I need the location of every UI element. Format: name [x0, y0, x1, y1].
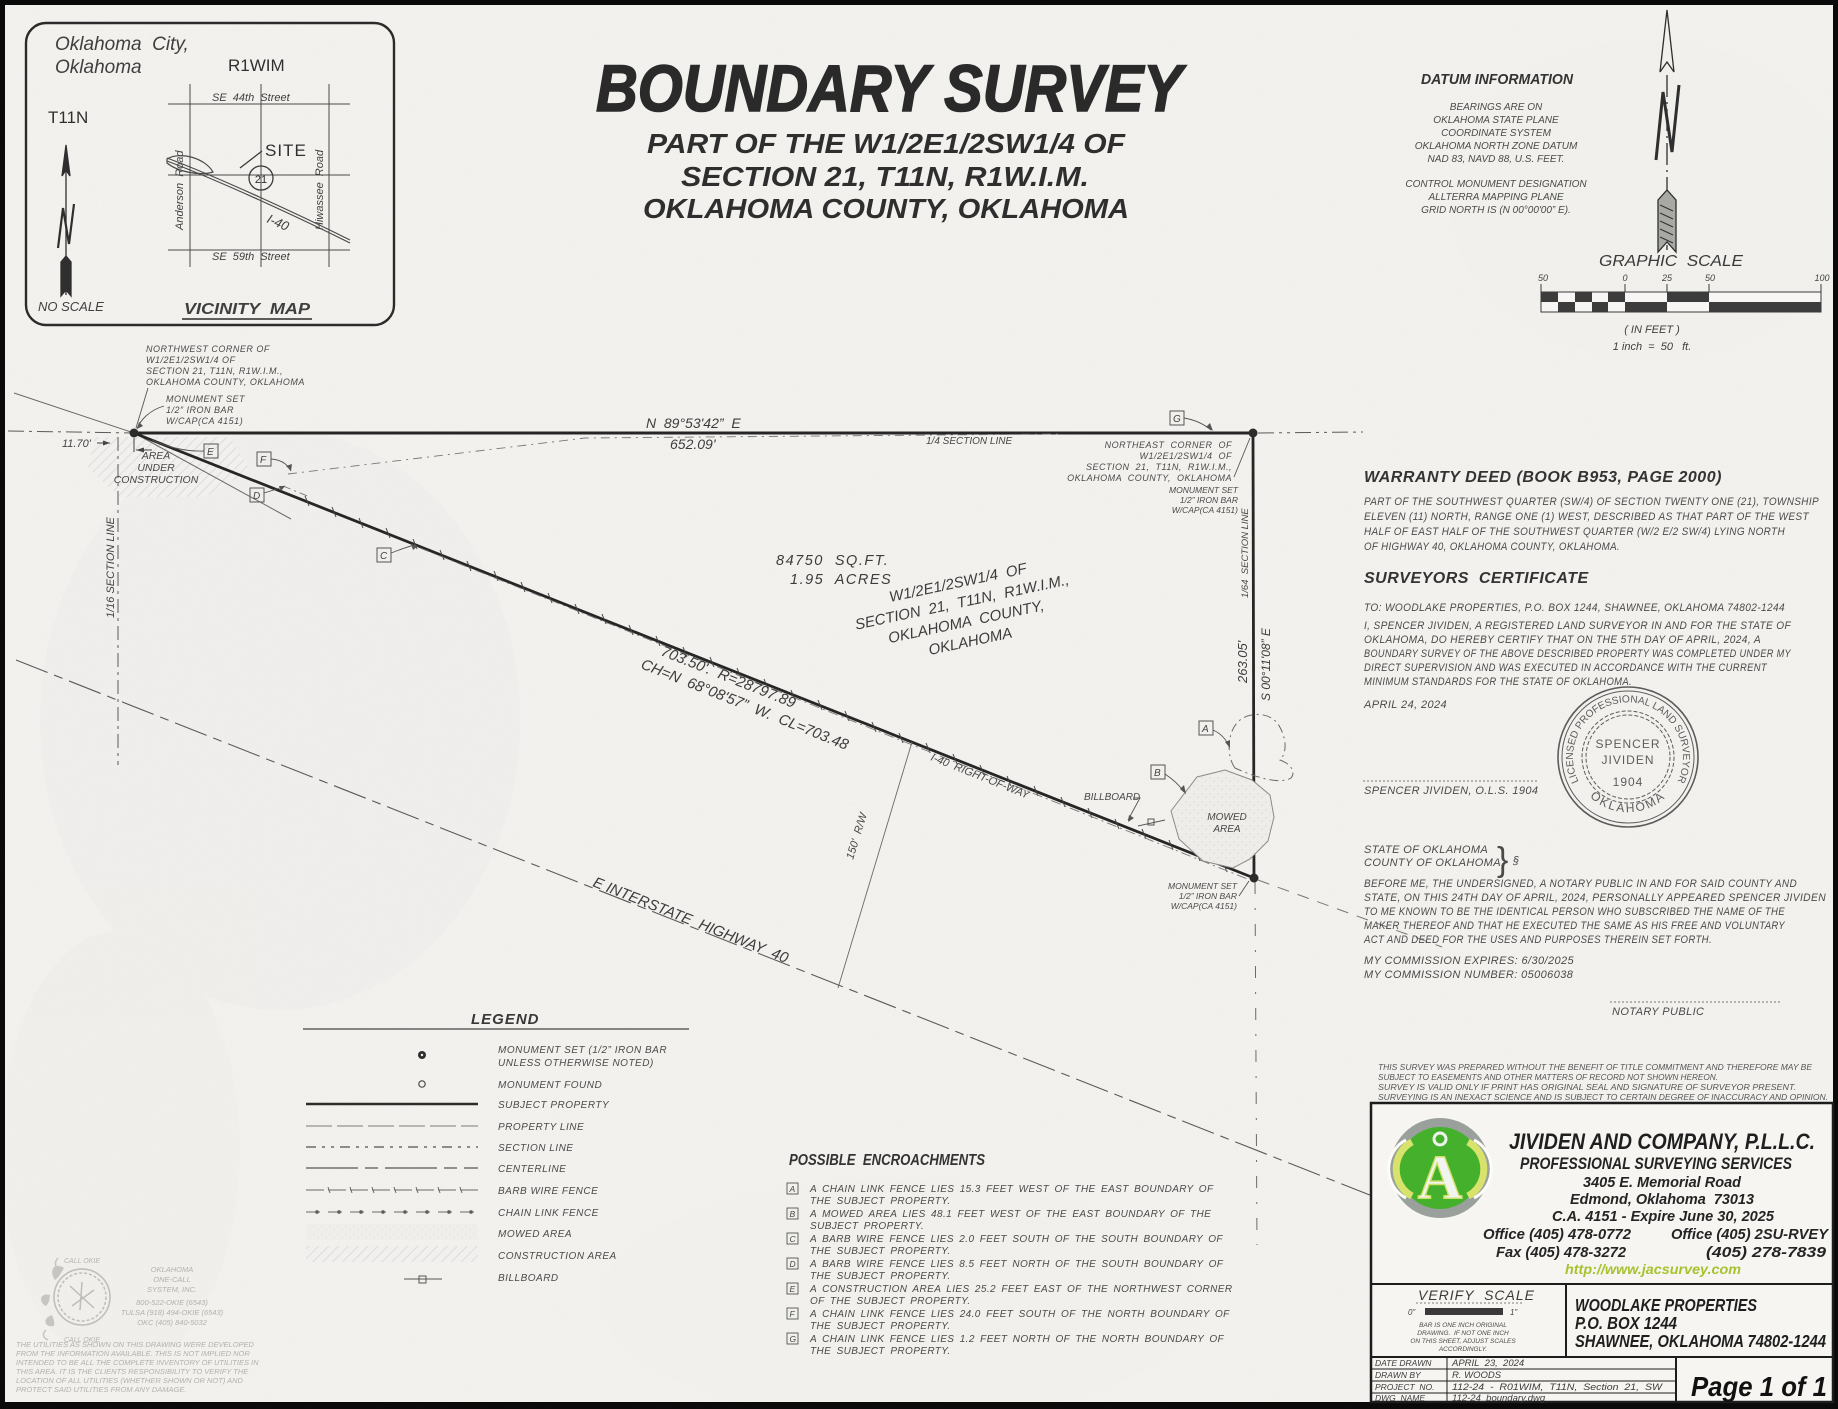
- svg-text:HALF OF EAST HALF OF THE SOUTH: HALF OF EAST HALF OF THE SOUTHWEST QUART…: [1364, 526, 1785, 538]
- svg-text:G: G: [1173, 414, 1181, 425]
- svg-text:A CHAIN LINK FENCE LIES 15.3 F: A CHAIN LINK FENCE LIES 15.3 FEET WEST O…: [809, 1184, 1214, 1195]
- svg-text:Oklahoma City,: Oklahoma City,: [55, 34, 189, 55]
- svg-text:CENTERLINE: CENTERLINE: [498, 1164, 566, 1175]
- svg-text:SPENCER: SPENCER: [1595, 737, 1660, 751]
- svg-text:DRAWN BY: DRAWN BY: [1375, 1370, 1422, 1380]
- svg-text:THIS SURVEY WAS PREPARED WITHO: THIS SURVEY WAS PREPARED WITHOUT THE BEN…: [1378, 1063, 1813, 1072]
- svg-text:VICINITY MAP: VICINITY MAP: [184, 301, 310, 318]
- svg-text:LEGEND: LEGEND: [471, 1011, 540, 1028]
- svg-text:ON THIS SHEET, ADJUST SCALES: ON THIS SHEET, ADJUST SCALES: [1410, 1338, 1516, 1345]
- svg-text:A CONSTRUCTION AREA LIES 25.2: A CONSTRUCTION AREA LIES 25.2 FEET EAST …: [809, 1284, 1232, 1295]
- svg-text:BEFORE ME, THE UNDERSIGNED, A: BEFORE ME, THE UNDERSIGNED, A NOTARY PUB…: [1364, 878, 1797, 890]
- svg-text:A BARB WIRE FENCE LIES 8.5 FEE: A BARB WIRE FENCE LIES 8.5 FEET NORTH OF…: [809, 1259, 1224, 1270]
- svg-text:W1/2E1/2SW1/4 OF: W1/2E1/2SW1/4 OF: [1139, 451, 1232, 461]
- svg-text:F: F: [790, 1309, 796, 1319]
- svg-text:SECTION 21, T11N, R1W.I.M.,: SECTION 21, T11N, R1W.I.M.,: [146, 366, 283, 376]
- svg-text:Office (405) 2SU-RVEY: Office (405) 2SU-RVEY: [1671, 1226, 1830, 1243]
- svg-text:SUBJECT TO EASEMENTS AND OTHER: SUBJECT TO EASEMENTS AND OTHER MATTERS O…: [1378, 1073, 1718, 1082]
- svg-text:NAD 83, NAVD 88, U.S. FEET.: NAD 83, NAVD 88, U.S. FEET.: [1428, 154, 1565, 165]
- svg-text:100: 100: [1814, 273, 1829, 283]
- svg-text:SITE: SITE: [265, 141, 307, 160]
- svg-text:CONSTRUCTION: CONSTRUCTION: [114, 474, 199, 486]
- svg-text:0: 0: [1622, 273, 1627, 283]
- svg-text:1/64 SECTION LINE: 1/64 SECTION LINE: [1240, 508, 1251, 598]
- svg-text:DIRECT SUPERVISION AND WAS EXE: DIRECT SUPERVISION AND WAS EXECUTED IN A…: [1364, 662, 1768, 674]
- svg-text:1.95 ACRES: 1.95 ACRES: [790, 572, 892, 588]
- svg-text:}: }: [1497, 841, 1508, 879]
- svg-text:FROM THE INFORMATION AVAILABLE: FROM THE INFORMATION AVAILABLE. THIS IS …: [16, 1349, 250, 1358]
- svg-text:B: B: [1154, 768, 1161, 779]
- svg-text:C.A. 4151 - Expire June 30, 20: C.A. 4151 - Expire June 30, 2025: [1552, 1208, 1775, 1225]
- svg-text:ACCORDINGLY.: ACCORDINGLY.: [1438, 1346, 1487, 1353]
- svg-text:CALL OKIE: CALL OKIE: [64, 1258, 100, 1265]
- svg-text:SUBJECT PROPERTY.: SUBJECT PROPERTY.: [810, 1221, 924, 1232]
- svg-text:CHAIN LINK FENCE: CHAIN LINK FENCE: [498, 1208, 599, 1219]
- svg-text:OKLAHOMA STATE PLANE: OKLAHOMA STATE PLANE: [1433, 115, 1559, 126]
- svg-text:MY COMMISSION EXPIRES: 6/30/20: MY COMMISSION EXPIRES: 6/30/2025: [1364, 955, 1575, 967]
- svg-text:Oklahoma: Oklahoma: [55, 57, 142, 78]
- svg-text:PROTECT SAID UTILITIES FROM AN: PROTECT SAID UTILITIES FROM ANY DAMAGE.: [16, 1385, 186, 1394]
- svg-text:MAKER THEREOF AND THAT HE EXEC: MAKER THEREOF AND THAT HE EXECUTED THE S…: [1364, 920, 1785, 932]
- svg-text:OKLAHOMA COUNTY, OKLAHOMA: OKLAHOMA COUNTY, OKLAHOMA: [643, 193, 1129, 224]
- svg-text:(405) 278-7839: (405) 278-7839: [1706, 1244, 1827, 1261]
- svg-text:LOCATION OF ALL UTILITIES (WHE: LOCATION OF ALL UTILITIES (WHETHER SHOWN…: [16, 1376, 244, 1385]
- svg-text:STATE, ON THIS 24TH DAY OF APR: STATE, ON THIS 24TH DAY OF APRIL, 2024, …: [1364, 892, 1826, 904]
- svg-text:SPENCER JIVIDEN, O.L.S. 1904: SPENCER JIVIDEN, O.L.S. 1904: [1364, 785, 1538, 797]
- svg-text:COORDINATE SYSTEM: COORDINATE SYSTEM: [1441, 128, 1551, 139]
- svg-text:MONUMENT SET (1/2” IRON BAR: MONUMENT SET (1/2” IRON BAR: [498, 1045, 667, 1056]
- svg-text:SECTION LINE: SECTION LINE: [498, 1143, 573, 1154]
- svg-text:THE SUBJECT PROPERTY.: THE SUBJECT PROPERTY.: [810, 1321, 951, 1332]
- svg-text:652.09': 652.09': [670, 436, 717, 452]
- svg-text:COUNTY OF OKLAHOMA: COUNTY OF OKLAHOMA: [1364, 857, 1501, 869]
- svg-text:E: E: [207, 447, 214, 458]
- svg-text:SURVEY IS VALID ONLY IF PRINT: SURVEY IS VALID ONLY IF PRINT HAS ORIGIN…: [1378, 1083, 1796, 1092]
- svg-text:C: C: [380, 551, 388, 562]
- svg-text:R. WOODS: R. WOODS: [1452, 1370, 1502, 1381]
- svg-text:D: D: [790, 1259, 796, 1269]
- svg-text:STATE OF OKLAHOMA: STATE OF OKLAHOMA: [1364, 844, 1488, 856]
- svg-text:OKLAHOMA: OKLAHOMA: [151, 1265, 194, 1274]
- svg-text:1 inch = 50 ft.: 1 inch = 50 ft.: [1613, 341, 1692, 353]
- svg-text:1/2” IRON BAR: 1/2” IRON BAR: [166, 405, 234, 415]
- svg-text:BILLBOARD: BILLBOARD: [1084, 792, 1140, 803]
- svg-text:Fax (405) 478-3272: Fax (405) 478-3272: [1496, 1244, 1627, 1261]
- svg-text:SECTION 21, T11N, R1W.I.M.: SECTION 21, T11N, R1W.I.M.: [681, 161, 1089, 192]
- svg-text:P.O. BOX 1244: P.O. BOX 1244: [1575, 1313, 1677, 1333]
- svg-text:( IN FEET ): ( IN FEET ): [1624, 324, 1680, 336]
- svg-text:GRAPHIC SCALE: GRAPHIC SCALE: [1599, 253, 1743, 270]
- svg-text:DRAWING. IF NOT ONE INCH: DRAWING. IF NOT ONE INCH: [1417, 1330, 1509, 1337]
- svg-text:PROFESSIONAL SURVEYING SERVICE: PROFESSIONAL SURVEYING SERVICES: [1520, 1154, 1793, 1173]
- svg-text:THE SUBJECT PROPERTY.: THE SUBJECT PROPERTY.: [810, 1196, 951, 1207]
- svg-text:112-24_boundary.dwg: 112-24_boundary.dwg: [1452, 1393, 1546, 1404]
- svg-text:C: C: [790, 1234, 797, 1244]
- svg-text:N 89°53'42” E: N 89°53'42” E: [646, 415, 741, 431]
- svg-text:1/16 SECTION LINE: 1/16 SECTION LINE: [105, 516, 117, 618]
- svg-text:50: 50: [1538, 273, 1548, 283]
- svg-text:S 00°11'08” E: S 00°11'08” E: [1259, 627, 1273, 701]
- svg-text:T11N: T11N: [48, 108, 88, 127]
- svg-text:1/2” IRON BAR: 1/2” IRON BAR: [1180, 495, 1238, 505]
- svg-text:AREA: AREA: [1212, 824, 1241, 835]
- svg-text:DATE DRAWN: DATE DRAWN: [1375, 1358, 1432, 1368]
- svg-text:MONUMENT SET: MONUMENT SET: [1168, 881, 1238, 891]
- svg-text:50: 50: [1705, 273, 1715, 283]
- svg-text:ACT AND DEED FOR THE USES AND: ACT AND DEED FOR THE USES AND PURPOSES T…: [1363, 934, 1712, 946]
- svg-text:84750 SQ.FT.: 84750 SQ.FT.: [776, 553, 889, 569]
- svg-text:263.05': 263.05': [1235, 640, 1250, 684]
- svg-text:A MOWED AREA LIES 48.1 FEET WE: A MOWED AREA LIES 48.1 FEET WEST OF THE …: [809, 1209, 1211, 1220]
- svg-text:BARB WIRE FENCE: BARB WIRE FENCE: [498, 1186, 598, 1197]
- svg-text:BAR IS ONE INCH ORIGINAL: BAR IS ONE INCH ORIGINAL: [1419, 1322, 1507, 1329]
- svg-text:W1/2E1/2SW1/4 OF: W1/2E1/2SW1/4 OF: [146, 355, 236, 365]
- svg-text:R1WIM: R1WIM: [228, 56, 285, 75]
- svg-text:11.70': 11.70': [62, 438, 92, 450]
- svg-text:THIS AREA. IT IS THE CLIENTS R: THIS AREA. IT IS THE CLIENTS RESPONSIBIL…: [16, 1367, 249, 1376]
- svg-text:1/4 SECTION LINE: 1/4 SECTION LINE: [926, 436, 1012, 447]
- svg-text:TO ME KNOWN TO BE THE IDENTICA: TO ME KNOWN TO BE THE IDENTICAL PERSON W…: [1364, 906, 1785, 918]
- svg-text:W/CAP(CA 4151): W/CAP(CA 4151): [1172, 505, 1238, 515]
- svg-text:PART OF THE W1/2E1/2SW1/4 OF: PART OF THE W1/2E1/2SW1/4 OF: [647, 128, 1126, 159]
- svg-text:http://www.jacsurvey.com: http://www.jacsurvey.com: [1565, 1261, 1741, 1277]
- svg-text:E: E: [790, 1284, 796, 1294]
- svg-text:MOWED: MOWED: [1207, 812, 1246, 823]
- svg-text:PROPERTY LINE: PROPERTY LINE: [498, 1122, 584, 1133]
- svg-text:SURVEYING IS AN INEXACT SCIENC: SURVEYING IS AN INEXACT SCIENCE AND IS S…: [1378, 1093, 1828, 1102]
- svg-text:APRIL 24, 2024: APRIL 24, 2024: [1363, 699, 1447, 711]
- svg-text:A CHAIN LINK FENCE LIES 1.2 FE: A CHAIN LINK FENCE LIES 1.2 FEET NORTH O…: [809, 1334, 1225, 1345]
- svg-text:THE SUBJECT PROPERTY.: THE SUBJECT PROPERTY.: [810, 1271, 951, 1282]
- svg-text:25: 25: [1661, 273, 1673, 283]
- svg-text:1904: 1904: [1613, 775, 1644, 789]
- svg-text:OKLAHOMA NORTH ZONE DATUM: OKLAHOMA NORTH ZONE DATUM: [1415, 141, 1578, 152]
- svg-text:MOWED AREA: MOWED AREA: [498, 1229, 572, 1240]
- svg-text:GRID NORTH IS (N 00°00'00” E).: GRID NORTH IS (N 00°00'00” E).: [1421, 205, 1571, 216]
- svg-text:BOUNDARY SURVEY: BOUNDARY SURVEY: [596, 51, 1186, 125]
- svg-text:UNDER: UNDER: [137, 462, 175, 474]
- svg-text:NOTARY PUBLIC: NOTARY PUBLIC: [1612, 1006, 1704, 1018]
- svg-text:BOUNDARY SURVEY OF THE ABOVE D: BOUNDARY SURVEY OF THE ABOVE DESCRIBED P…: [1364, 648, 1791, 660]
- svg-text:A: A: [1201, 724, 1209, 735]
- svg-text:AREA: AREA: [141, 450, 171, 462]
- svg-text:OF THE SUBJECT PROPERTY.: OF THE SUBJECT PROPERTY.: [810, 1296, 971, 1307]
- svg-text:DATUM INFORMATION: DATUM INFORMATION: [1421, 72, 1574, 88]
- svg-text:G: G: [790, 1334, 797, 1344]
- svg-text:OF HIGHWAY 40, OKLAHOMA COUNTY: OF HIGHWAY 40, OKLAHOMA COUNTY, OKLAHOMA…: [1364, 541, 1620, 553]
- svg-text:ELEVEN (11) NORTH, RANGE ONE (: ELEVEN (11) NORTH, RANGE ONE (1) WEST, D…: [1364, 511, 1810, 523]
- svg-text:NO SCALE: NO SCALE: [38, 299, 104, 314]
- svg-text:SE 44th Street: SE 44th Street: [212, 92, 291, 104]
- svg-text:APRIL 23, 2024: APRIL 23, 2024: [1451, 1358, 1524, 1369]
- svg-text:JIVIDEN: JIVIDEN: [1601, 753, 1654, 767]
- svg-text:3405 E. Memorial Road: 3405 E. Memorial Road: [1583, 1174, 1742, 1191]
- svg-text:OKLAHOMA COUNTY, OKLAHOMA: OKLAHOMA COUNTY, OKLAHOMA: [146, 377, 305, 387]
- svg-text:1/2” IRON BAR: 1/2” IRON BAR: [1179, 891, 1237, 901]
- svg-text:SECTION 21, T11N, R1W.I.M.,: SECTION 21, T11N, R1W.I.M.,: [1086, 462, 1232, 472]
- svg-text:OKC (405) 840-5032: OKC (405) 840-5032: [137, 1318, 207, 1327]
- svg-text:OKLAHOMA, DO HEREBY CERTIFY TH: OKLAHOMA, DO HEREBY CERTIFY THAT ON THE …: [1364, 634, 1761, 646]
- svg-text:SURVEYORS CERTIFICATE: SURVEYORS CERTIFICATE: [1364, 570, 1589, 587]
- svg-text:WARRANTY DEED (BOOK B953, PAGE: WARRANTY DEED (BOOK B953, PAGE 2000): [1364, 469, 1722, 486]
- svg-text:ONE-CALL: ONE-CALL: [153, 1275, 191, 1284]
- svg-text:PROJECT NO.: PROJECT NO.: [1375, 1382, 1435, 1392]
- svg-text:MONUMENT SET: MONUMENT SET: [1169, 485, 1239, 495]
- svg-text:W/CAP(CA 4151): W/CAP(CA 4151): [166, 416, 243, 426]
- svg-text:SUBJECT PROPERTY: SUBJECT PROPERTY: [498, 1100, 610, 1111]
- svg-text:I, SPENCER JIVIDEN, A REGISTER: I, SPENCER JIVIDEN, A REGISTERED LAND SU…: [1364, 620, 1792, 632]
- svg-text:CONTROL MONUMENT DESIGNATION: CONTROL MONUMENT DESIGNATION: [1405, 179, 1587, 190]
- svg-text:A: A: [789, 1184, 796, 1194]
- svg-text:SE 59th Street: SE 59th Street: [212, 251, 291, 263]
- svg-text:POSSIBLE ENCROACHMENTS: POSSIBLE ENCROACHMENTS: [789, 1152, 985, 1169]
- svg-text:D: D: [253, 491, 260, 502]
- svg-text:A: A: [1418, 1144, 1463, 1212]
- svg-text:§: §: [1512, 855, 1519, 867]
- svg-text:INTENDED TO BE ALL THE COMPLET: INTENDED TO BE ALL THE COMPLETE INVENTOR…: [16, 1358, 259, 1367]
- svg-text:CONSTRUCTION AREA: CONSTRUCTION AREA: [498, 1251, 617, 1262]
- svg-text:WOODLAKE PROPERTIES: WOODLAKE PROPERTIES: [1575, 1295, 1757, 1315]
- svg-text:Hiwassee Road: Hiwassee Road: [314, 149, 326, 230]
- svg-text:NORTHEAST CORNER OF: NORTHEAST CORNER OF: [1105, 440, 1232, 450]
- svg-text:PART OF THE SOUTHWEST QUARTER: PART OF THE SOUTHWEST QUARTER (SW/4) OF …: [1364, 496, 1819, 508]
- svg-text:SYSTEM, INC.: SYSTEM, INC.: [147, 1285, 197, 1294]
- svg-text:0”: 0”: [1408, 1308, 1415, 1317]
- svg-text:THE SUBJECT PROPERTY.: THE SUBJECT PROPERTY.: [810, 1346, 951, 1357]
- svg-text:BILLBOARD: BILLBOARD: [498, 1273, 559, 1284]
- svg-text:THE UTILITIES AS SHOWN ON THIS: THE UTILITIES AS SHOWN ON THIS DRAWING W…: [16, 1340, 255, 1349]
- svg-text:112-24 - R01WIM, T11N, Sec: 112-24 - R01WIM, T11N, Section 21, SW: [1452, 1382, 1663, 1393]
- svg-text:UNLESS OTHERWISE NOTED): UNLESS OTHERWISE NOTED): [498, 1058, 654, 1069]
- svg-text:BEARINGS ARE ON: BEARINGS ARE ON: [1450, 102, 1543, 113]
- svg-text:MY COMMISSION NUMBER: 05006038: MY COMMISSION NUMBER: 05006038: [1364, 969, 1574, 981]
- svg-text:ALLTERRA MAPPING PLANE: ALLTERRA MAPPING PLANE: [1427, 192, 1563, 203]
- svg-text:B: B: [790, 1209, 796, 1219]
- svg-text:21: 21: [255, 174, 267, 186]
- svg-text:800-522-OKIE (6543): 800-522-OKIE (6543): [136, 1298, 208, 1307]
- svg-text:A BARB WIRE FENCE LIES 2.0 FEE: A BARB WIRE FENCE LIES 2.0 FEET SOUTH OF…: [809, 1234, 1223, 1245]
- svg-text:1”: 1”: [1510, 1308, 1517, 1317]
- svg-text:JIVIDEN AND COMPANY, P.L.L.C.: JIVIDEN AND COMPANY, P.L.L.C.: [1509, 1129, 1815, 1154]
- svg-text:DWG NAME: DWG NAME: [1375, 1393, 1425, 1403]
- svg-text:Edmond, Oklahoma 73013: Edmond, Oklahoma 73013: [1570, 1191, 1755, 1208]
- svg-text:NORTHWEST CORNER OF: NORTHWEST CORNER OF: [146, 344, 270, 354]
- svg-text:SHAWNEE, OKLAHOMA 74802-1244: SHAWNEE, OKLAHOMA 74802-1244: [1575, 1331, 1826, 1351]
- svg-text:MONUMENT SET: MONUMENT SET: [166, 394, 246, 404]
- svg-text:TULSA (918) 494-OKIE (6543): TULSA (918) 494-OKIE (6543): [121, 1308, 224, 1317]
- svg-text:MINIMUM STANDARDS FOR THE STAT: MINIMUM STANDARDS FOR THE STATE OF OKLAH…: [1364, 676, 1632, 688]
- svg-text:A CHAIN LINK FENCE LIES 24.0 F: A CHAIN LINK FENCE LIES 24.0 FEET SOUTH …: [809, 1309, 1230, 1320]
- svg-text:W/CAP(CA 4151): W/CAP(CA 4151): [1171, 901, 1237, 911]
- svg-text:VERIFY SCALE: VERIFY SCALE: [1418, 1287, 1535, 1303]
- svg-text:F: F: [260, 455, 267, 466]
- svg-text:OKLAHOMA COUNTY, OKLAHOMA: OKLAHOMA COUNTY, OKLAHOMA: [1067, 473, 1232, 483]
- svg-text:Page 1 of 1: Page 1 of 1: [1691, 1371, 1827, 1402]
- svg-text:TO: WOODLAKE PROPERTIES, P.O.: TO: WOODLAKE PROPERTIES, P.O. BOX 1244, …: [1364, 602, 1785, 614]
- svg-text:Office (405) 478-0772: Office (405) 478-0772: [1483, 1226, 1632, 1243]
- svg-text:THE SUBJECT PROPERTY.: THE SUBJECT PROPERTY.: [810, 1246, 951, 1257]
- svg-text:MONUMENT FOUND: MONUMENT FOUND: [498, 1080, 602, 1091]
